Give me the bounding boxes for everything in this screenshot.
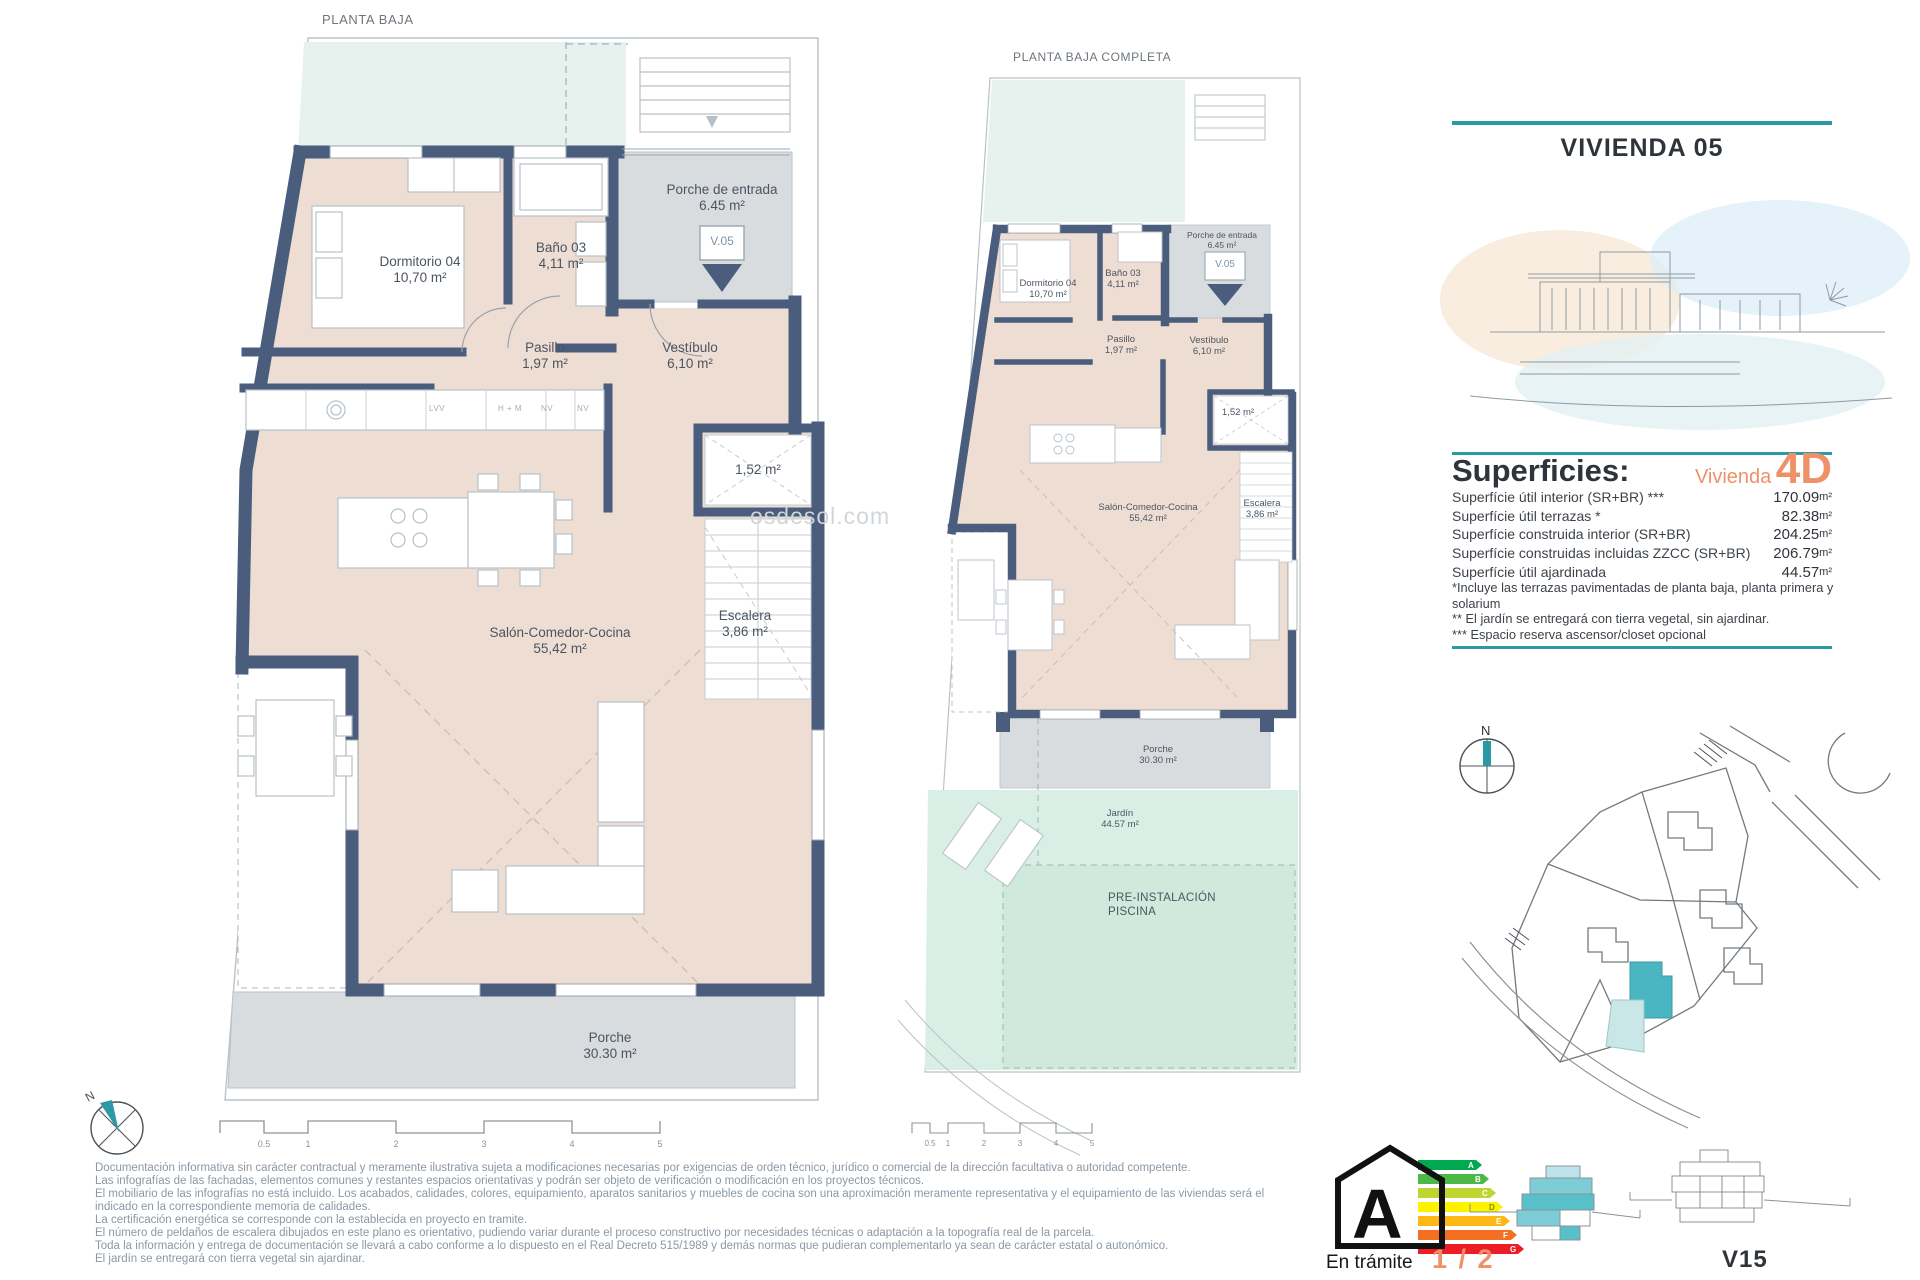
compass-rose-icon: N	[83, 1088, 143, 1154]
svg-text:2: 2	[982, 1139, 987, 1148]
energy-rating-letter: A	[1352, 1175, 1403, 1253]
plan-sheet: { "theme": { "accent_teal": "#2b9aa5", "…	[0, 0, 1920, 1280]
staircase	[705, 519, 811, 699]
energy-rating-label: A B C D E F G A	[1338, 1148, 1524, 1254]
svg-text:5: 5	[1090, 1139, 1095, 1148]
svg-text:A: A	[1468, 1161, 1474, 1170]
svg-text:0.5: 0.5	[924, 1139, 936, 1148]
svg-text:3: 3	[481, 1139, 486, 1149]
kitchen-island	[338, 498, 468, 568]
north-label: N	[1481, 723, 1490, 738]
svg-text:C: C	[1482, 1189, 1488, 1198]
svg-text:4: 4	[1054, 1139, 1059, 1148]
wardrobe	[408, 158, 500, 192]
svg-text:D: D	[1489, 1203, 1495, 1212]
floor-plan-planta-baja-completa	[898, 78, 1300, 1155]
compass-icon: N	[1460, 723, 1514, 793]
closet-152	[705, 435, 811, 505]
svg-text:1: 1	[946, 1139, 951, 1148]
scale-bar-ticks: 0.5 1 2 3 4 5	[258, 1139, 663, 1149]
scale-bar-small-ticks: 0.5 1 2 3 4 5	[924, 1139, 1094, 1148]
site-map: N	[1460, 723, 1890, 1128]
bed	[312, 206, 464, 328]
kitchen-counter	[246, 390, 604, 430]
building-section-outline	[1630, 1150, 1850, 1222]
svg-text:2: 2	[393, 1139, 398, 1149]
svg-text:B: B	[1475, 1175, 1481, 1184]
scale-bar	[220, 1121, 660, 1133]
svg-text:E: E	[1496, 1217, 1502, 1226]
sheet-drawing: N N 0.5 1 2	[0, 0, 1920, 1280]
render-illustration	[1440, 200, 1910, 430]
north-label: N	[83, 1088, 97, 1104]
entry-steps	[640, 58, 790, 132]
svg-text:5: 5	[657, 1139, 662, 1149]
svg-text:1: 1	[305, 1139, 310, 1149]
floor-plan-planta-baja	[225, 38, 824, 1100]
staircase-small	[1240, 452, 1292, 562]
svg-text:3: 3	[1018, 1139, 1023, 1148]
svg-text:4: 4	[569, 1139, 574, 1149]
svg-text:0.5: 0.5	[258, 1139, 271, 1149]
svg-text:G: G	[1510, 1245, 1516, 1254]
svg-text:F: F	[1503, 1231, 1508, 1240]
